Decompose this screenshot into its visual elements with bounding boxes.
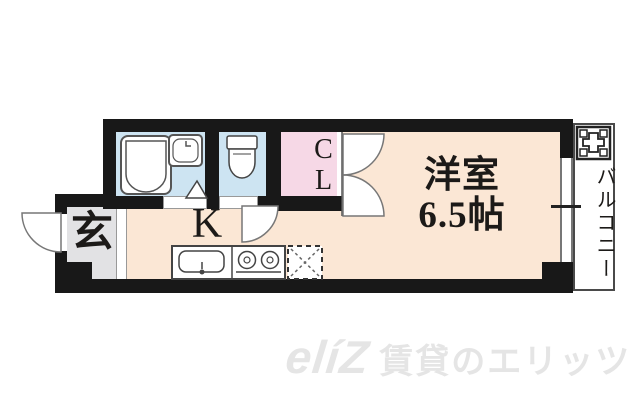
toilet-icon <box>227 136 257 178</box>
washing-machine-space-icon <box>577 127 610 159</box>
kitchen-counter-icon <box>172 246 285 279</box>
main-room-size: 6.5帖 <box>368 196 556 236</box>
entrance-door-swing <box>22 213 61 252</box>
bathtub-icon <box>121 136 171 194</box>
balcony-label: バルコニー <box>574 160 614 286</box>
floorplan-canvas: 玄 K CL 洋室 6.5帖 バルコニー elíZ 賃貸のエリッツ <box>0 0 640 416</box>
kitchen-label: K <box>184 203 230 245</box>
washbasin-icon <box>169 135 202 166</box>
main-room-name: 洋室 <box>368 156 556 196</box>
watermark: elíZ 賃貸のエリッツ <box>286 330 631 384</box>
bathroom-door-swing <box>186 181 207 198</box>
toilet-door-swing <box>242 206 278 242</box>
entrance-label: 玄 <box>66 212 118 254</box>
main-room-label: 洋室 6.5帖 <box>368 156 556 236</box>
refrigerator-space-icon <box>288 246 322 279</box>
watermark-text: 賃貸のエリッツ <box>379 334 631 383</box>
closet-label: CL <box>281 135 337 195</box>
watermark-logo: elíZ <box>283 330 372 384</box>
